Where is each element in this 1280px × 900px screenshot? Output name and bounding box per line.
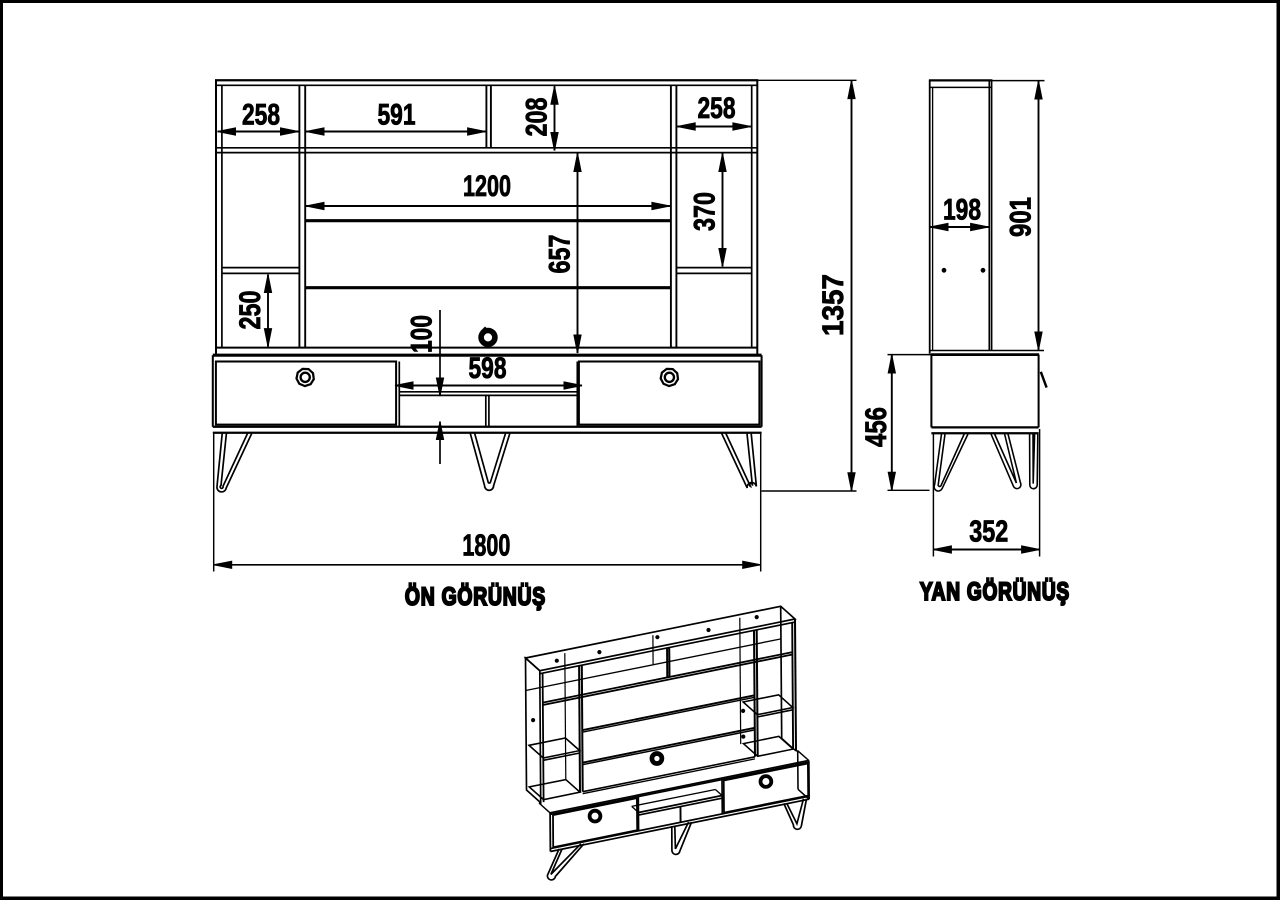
svg-text:250: 250	[234, 291, 267, 330]
svg-text:258: 258	[698, 92, 736, 125]
svg-text:456: 456	[860, 407, 893, 447]
svg-text:591: 591	[378, 99, 416, 132]
svg-text:ÖN GÖRÜNÜŞ: ÖN GÖRÜNÜŞ	[405, 582, 546, 611]
svg-text:198: 198	[943, 193, 981, 226]
svg-text:657: 657	[544, 235, 577, 274]
svg-text:100: 100	[406, 315, 439, 353]
svg-text:208: 208	[521, 98, 554, 137]
svg-text:1800: 1800	[462, 528, 510, 563]
svg-text:258: 258	[242, 99, 280, 132]
svg-text:352: 352	[969, 514, 1008, 549]
svg-text:YAN GÖRÜNÜŞ: YAN GÖRÜNÜŞ	[920, 577, 1070, 606]
svg-text:598: 598	[469, 352, 507, 385]
svg-text:1357: 1357	[817, 274, 850, 336]
svg-text:370: 370	[689, 192, 722, 231]
svg-text:1200: 1200	[463, 170, 511, 203]
svg-text:901: 901	[1005, 197, 1038, 237]
